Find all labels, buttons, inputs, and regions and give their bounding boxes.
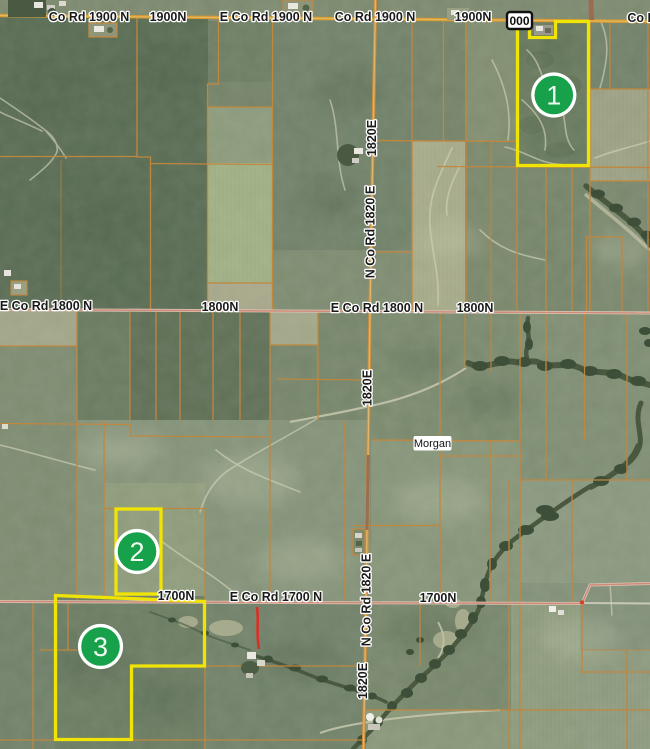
svg-text:1700N: 1700N — [158, 589, 195, 603]
svg-text:1800N: 1800N — [202, 300, 239, 314]
svg-text:1800N: 1800N — [457, 301, 494, 315]
svg-text:1820E: 1820E — [360, 370, 374, 406]
svg-text:Co Rd 1900 N: Co Rd 1900 N — [335, 10, 416, 24]
svg-text:2: 2 — [129, 537, 144, 567]
svg-text:E Co Rd 1800 N: E Co Rd 1800 N — [331, 301, 423, 315]
svg-text:000: 000 — [509, 14, 529, 28]
svg-text:E Co Rd 1800 N: E Co Rd 1800 N — [0, 299, 92, 313]
svg-text:Co R: Co R — [627, 11, 650, 25]
svg-text:Co Rd 1900 N: Co Rd 1900 N — [49, 10, 130, 24]
svg-text:1: 1 — [546, 81, 561, 111]
svg-text:N Co Rd 1820 E: N Co Rd 1820 E — [363, 186, 377, 278]
svg-text:1900N: 1900N — [150, 10, 187, 24]
svg-text:N Co Rd 1820 E: N Co Rd 1820 E — [359, 554, 373, 646]
svg-text:Morgan: Morgan — [414, 438, 451, 450]
svg-text:1820E: 1820E — [356, 663, 370, 699]
svg-text:E Co Rd 1900 N: E Co Rd 1900 N — [220, 10, 312, 24]
svg-text:E Co Rd 1700 N: E Co Rd 1700 N — [230, 590, 322, 604]
svg-text:1900N: 1900N — [455, 10, 492, 24]
svg-text:3: 3 — [93, 632, 108, 662]
svg-text:1820E: 1820E — [365, 120, 379, 156]
svg-text:1700N: 1700N — [420, 591, 457, 605]
